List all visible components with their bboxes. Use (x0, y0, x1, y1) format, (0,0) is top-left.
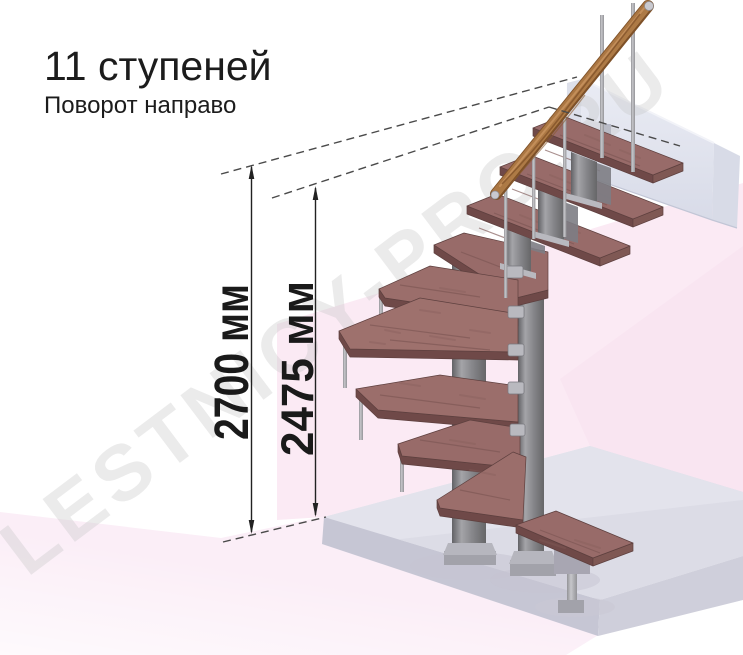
svg-text:2475 мм: 2475 мм (272, 281, 323, 456)
svg-text:11 ступеней: 11 ступеней (44, 43, 272, 89)
svg-text:Поворот направо: Поворот направо (44, 92, 236, 119)
svg-text:2700 мм: 2700 мм (206, 284, 259, 440)
